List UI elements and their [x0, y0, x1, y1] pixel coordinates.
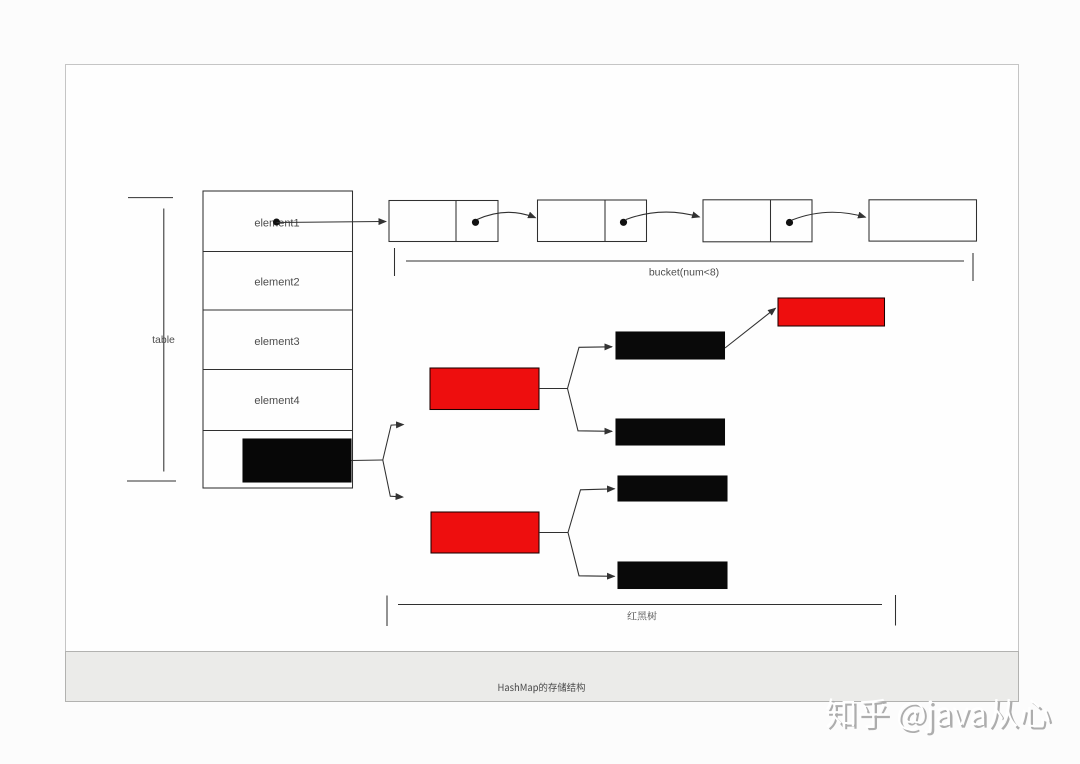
- svg-text:bucket(num<8): bucket(num<8): [649, 267, 719, 279]
- svg-text:element3: element3: [254, 336, 299, 348]
- svg-text:element2: element2: [254, 277, 299, 289]
- svg-text:table: table: [152, 334, 175, 346]
- svg-text:element4: element4: [254, 395, 299, 407]
